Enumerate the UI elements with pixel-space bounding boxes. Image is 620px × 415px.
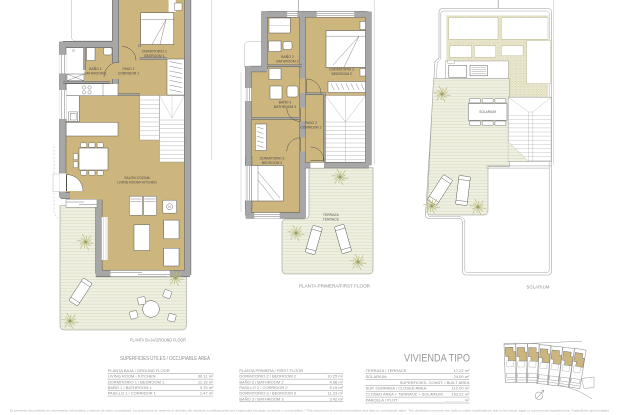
svg-text:CORRIDOR 2: CORRIDOR 2 [300,126,321,130]
svg-text:BEDROOM 2: BEDROOM 2 [332,72,352,76]
svg-text:BAÑO 3 / BATHROOM 3: BAÑO 3 / BATHROOM 3 [239,396,284,401]
svg-text:BAÑO 1 / BATHROOM 1: BAÑO 1 / BATHROOM 1 [108,385,153,390]
svg-text:PARCELA / PLOT: PARCELA / PLOT [366,398,398,403]
svg-text:PLANTA PRIMERA/FIRST FLOOR: PLANTA PRIMERA/FIRST FLOOR [299,283,370,288]
svg-text:BAÑO 1: BAÑO 1 [89,66,102,71]
svg-text:SOLARIUM: SOLARIUM [366,374,387,379]
svg-text:17.22 m²: 17.22 m² [454,368,470,373]
svg-text:................. m²: ................. m² [445,398,470,403]
svg-text:4.68 m²: 4.68 m² [329,379,343,384]
svg-text:SOLARIUM: SOLARIUM [527,285,550,290]
svg-text:BAÑO 3: BAÑO 3 [279,100,292,105]
svg-text:SUP. CERRADA / CLOSED AREA: SUP. CERRADA / CLOSED AREA [366,386,427,391]
svg-text:BEDROOM 3: BEDROOM 3 [262,161,282,165]
svg-text:BAÑO 2: BAÑO 2 [281,54,294,59]
svg-text:El presente documento es meram: El presente documento es meramente infor… [10,409,610,413]
svg-text:TERRACE: TERRACE [323,218,340,222]
svg-text:BAÑO 2 / BATHROOM 2: BAÑO 2 / BATHROOM 2 [239,379,284,384]
svg-text:DORMITORIO 3: DORMITORIO 3 [260,157,285,161]
svg-text:TERRAZA: TERRAZA [323,213,340,217]
svg-text:DORMITORIO 1: DORMITORIO 1 [142,50,167,54]
svg-text:DORMITORIO 2 / BEDROOM 2: DORMITORIO 2 / BEDROOM 2 [239,374,296,379]
svg-text:SUPERFICIES ÚTILES / OCCUPIABL: SUPERFICIES ÚTILES / OCCUPIABLE AREA [120,355,210,362]
svg-text:153.22 m²: 153.22 m² [451,392,470,397]
svg-text:PLANTA BAJA/GROUND FLOOR: PLANTA BAJA/GROUND FLOOR [130,338,186,343]
svg-text:DORMITORIO 1 / BEDROOM 1: DORMITORIO 1 / BEDROOM 1 [108,379,165,384]
svg-text:PLANTA BAJA / GROUND FLOOR: PLANTA BAJA / GROUND FLOOR [108,368,170,373]
svg-text:CLOSED AREA + TERRACE + SOLARI: CLOSED AREA + TERRACE + SOLARIUM [366,392,443,397]
svg-text:24.00 m²: 24.00 m² [454,374,470,379]
svg-text:3.75 m²: 3.75 m² [200,385,214,390]
svg-text:PASILLO 2 / CORRIDOR 2: PASILLO 2 / CORRIDOR 2 [239,385,288,390]
svg-text:LIVING ROOM+KITCHEN: LIVING ROOM+KITCHEN [117,181,157,185]
svg-text:3.42 m²: 3.42 m² [329,396,343,401]
svg-text:11.16 m²: 11.16 m² [198,379,214,384]
svg-text:CORRIDOR 1: CORRIDOR 1 [118,72,139,76]
svg-text:PLANTA PRIMERA / FIRST FLOOR: PLANTA PRIMERA / FIRST FLOOR [239,368,303,373]
svg-text:TERRAZA / TERRACE: TERRAZA / TERRACE [366,368,407,373]
svg-text:DORMITORIO 3 / BEDROOM 3: DORMITORIO 3 / BEDROOM 3 [239,391,296,396]
svg-text:VIVIENDA TIPO: VIVIENDA TIPO [404,353,470,365]
svg-text:DORMITORIO 2: DORMITORIO 2 [329,68,354,72]
svg-text:5.15 m²: 5.15 m² [329,385,343,390]
svg-text:BEDROOM 1: BEDROOM 1 [144,54,164,58]
svg-text:SUPERFICIES. CONST. / BUILT AR: SUPERFICIES. CONST. / BUILT AREA [400,380,470,385]
svg-text:PASO 1: PASO 1 [123,67,135,71]
svg-text:PASILLO 1 / CORRIDOR 1: PASILLO 1 / CORRIDOR 1 [108,391,157,396]
svg-text:BATHROOM 2: BATHROOM 2 [276,60,298,64]
svg-text:10.25 m²: 10.25 m² [327,374,343,379]
svg-text:112.00 m²: 112.00 m² [452,386,470,391]
svg-text:LIVING ROOM - KITCHEN: LIVING ROOM - KITCHEN [108,374,156,379]
svg-text:36.11 m²: 36.11 m² [198,374,214,379]
svg-text:BATHROOM 1: BATHROOM 1 [84,72,106,76]
svg-text:SOLARIUM: SOLARIUM [479,110,496,114]
svg-text:BATHROOM 3: BATHROOM 3 [274,105,296,109]
svg-text:1.47 m²: 1.47 m² [200,391,214,396]
svg-text:PASO 2: PASO 2 [305,121,317,125]
svg-text:11.23 m²: 11.23 m² [328,391,344,396]
svg-text:SALÓN COCINA: SALÓN COCINA [124,175,150,180]
